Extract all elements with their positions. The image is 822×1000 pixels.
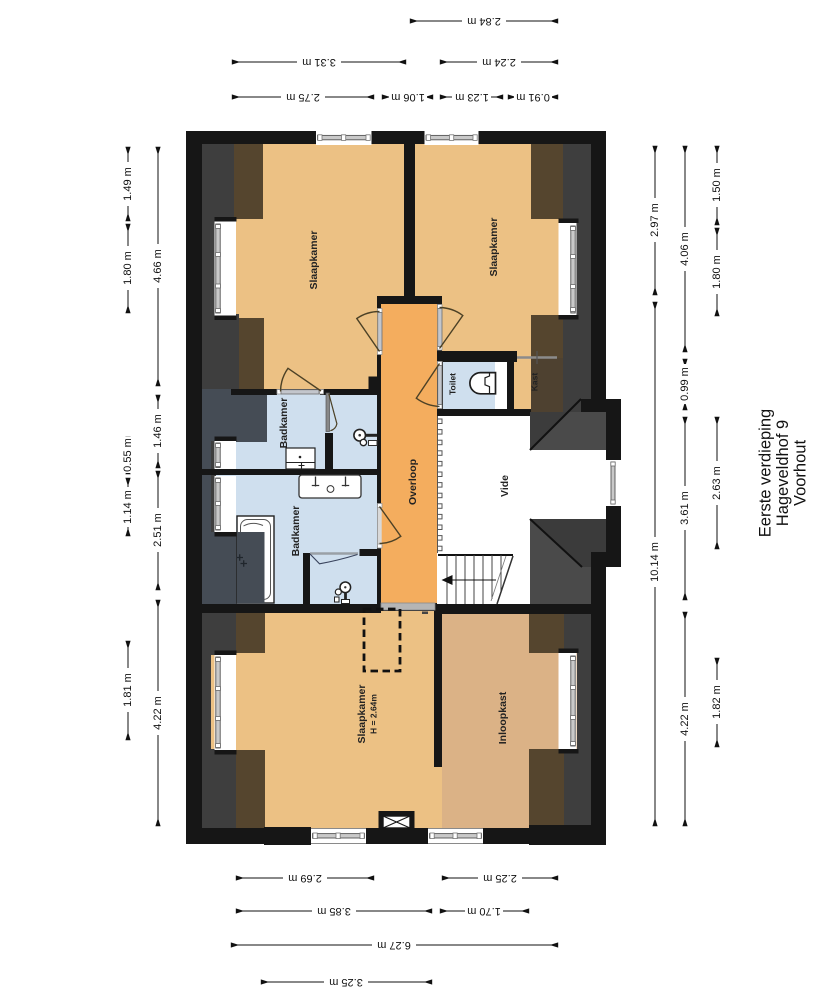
svg-text:1.50 m: 1.50 m bbox=[711, 168, 723, 202]
svg-text:3.25 m: 3.25 m bbox=[329, 976, 363, 988]
svg-text:1.70 m: 1.70 m bbox=[467, 905, 501, 917]
svg-text:2.97 m: 2.97 m bbox=[649, 203, 661, 237]
svg-text:1.06 m: 1.06 m bbox=[391, 91, 425, 103]
svg-text:2.25 m: 2.25 m bbox=[483, 872, 517, 884]
svg-text:1.80 m: 1.80 m bbox=[711, 255, 723, 289]
svg-text:Toilet: Toilet bbox=[447, 373, 457, 395]
svg-text:2.63 m: 2.63 m bbox=[711, 466, 723, 500]
svg-text:2.69 m: 2.69 m bbox=[288, 872, 322, 884]
svg-text:4.22 m: 4.22 m bbox=[679, 702, 691, 736]
svg-text:Inloopkast: Inloopkast bbox=[497, 691, 509, 744]
svg-text:Voorhout: Voorhout bbox=[791, 440, 809, 506]
svg-text:Slaapkamer: Slaapkamer bbox=[488, 218, 500, 277]
svg-text:2.24 m: 2.24 m bbox=[482, 56, 516, 68]
svg-text:10.14 m: 10.14 m bbox=[649, 542, 661, 582]
svg-text:Badkamer: Badkamer bbox=[278, 398, 290, 449]
svg-text:Badkamer: Badkamer bbox=[290, 506, 302, 557]
svg-text:2.51 m: 2.51 m bbox=[152, 513, 164, 547]
svg-text:0.55 m: 0.55 m bbox=[122, 438, 134, 472]
svg-text:1.23 m: 1.23 m bbox=[455, 91, 489, 103]
svg-text:Eerste verdieping: Eerste verdieping bbox=[756, 409, 774, 537]
svg-text:4.66 m: 4.66 m bbox=[152, 249, 164, 283]
svg-text:3.31 m: 3.31 m bbox=[302, 56, 336, 68]
svg-text:1.46 m: 1.46 m bbox=[152, 414, 164, 448]
svg-text:Kast: Kast bbox=[529, 373, 539, 392]
svg-text:Slaapkamer: Slaapkamer bbox=[308, 231, 320, 290]
svg-text:1.80 m: 1.80 m bbox=[122, 251, 134, 285]
svg-text:4.06 m: 4.06 m bbox=[679, 232, 691, 266]
svg-text:0.91 m: 0.91 m bbox=[516, 91, 550, 103]
svg-text:Overloop: Overloop bbox=[407, 459, 419, 505]
svg-text:H = 2.64m: H = 2.64m bbox=[368, 694, 378, 734]
svg-text:2.75 m: 2.75 m bbox=[286, 91, 320, 103]
svg-text:1.81 m: 1.81 m bbox=[122, 673, 134, 707]
svg-text:1.49 m: 1.49 m bbox=[122, 167, 134, 201]
svg-text:6.27 m: 6.27 m bbox=[377, 939, 411, 951]
svg-text:4.22 m: 4.22 m bbox=[152, 696, 164, 730]
svg-text:Vide: Vide bbox=[499, 475, 511, 497]
svg-text:3.85 m: 3.85 m bbox=[317, 905, 351, 917]
svg-text:0.99 m: 0.99 m bbox=[679, 367, 691, 401]
svg-text:1.82 m: 1.82 m bbox=[711, 685, 723, 719]
svg-text:Hageveldhof 9: Hageveldhof 9 bbox=[774, 420, 792, 526]
svg-text:1.14 m: 1.14 m bbox=[122, 490, 134, 524]
svg-text:3.61 m: 3.61 m bbox=[679, 491, 691, 525]
svg-text:Slaapkamer: Slaapkamer bbox=[356, 685, 368, 744]
svg-text:2.84 m: 2.84 m bbox=[467, 15, 501, 27]
